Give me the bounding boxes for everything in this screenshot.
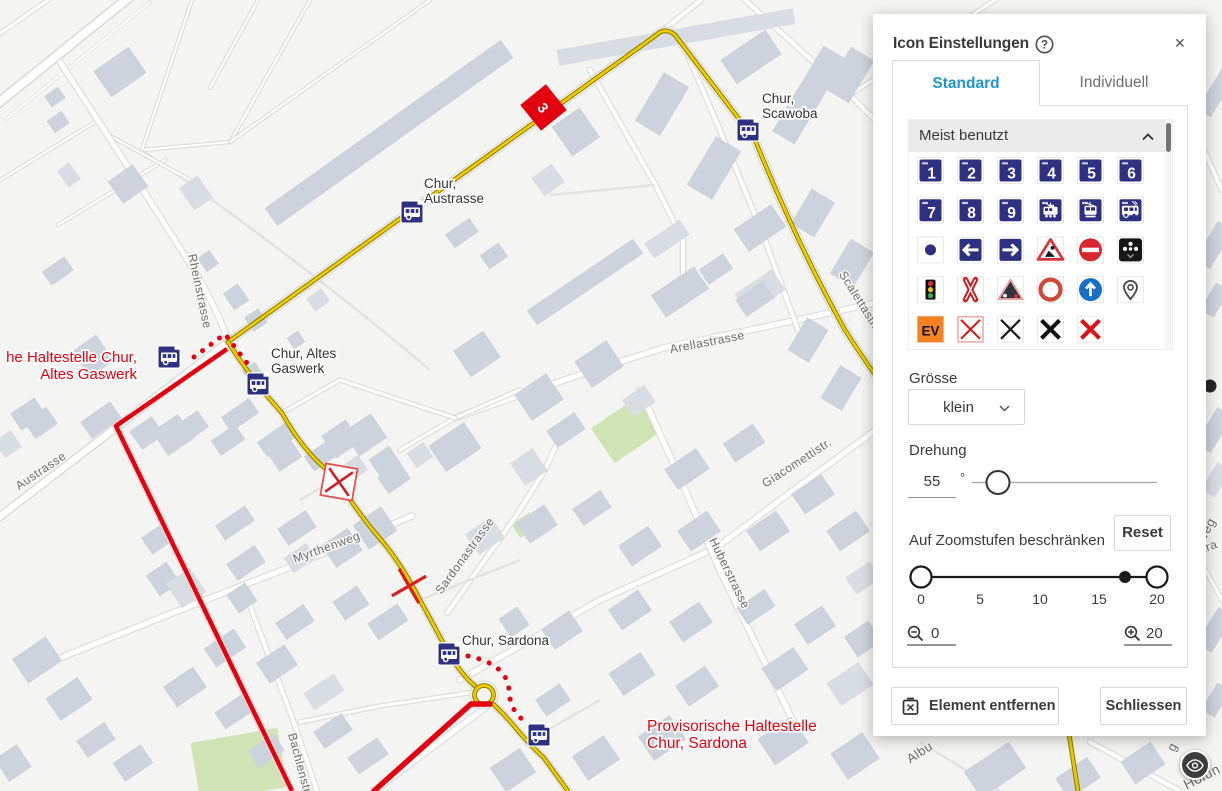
svg-text:he Haltestelle Chur,: he Haltestelle Chur, (6, 349, 137, 366)
svg-text:?: ? (1041, 40, 1048, 52)
svg-text:7: 7 (927, 205, 936, 222)
svg-text:4: 4 (1047, 166, 1056, 183)
svg-text:Altes Gaswerk: Altes Gaswerk (40, 366, 137, 383)
svg-text:Chur, Sardona: Chur, Sardona (462, 633, 550, 648)
svg-text:EV: EV (921, 323, 939, 338)
svg-text:6: 6 (1127, 166, 1136, 183)
svg-text:Chur, Sardona: Chur, Sardona (647, 735, 747, 752)
svg-text:Provisorische Haltestelle: Provisorische Haltestelle (647, 718, 817, 735)
svg-text:8: 8 (967, 205, 976, 222)
svg-text:Austrasse: Austrasse (424, 191, 484, 206)
svg-text:Scawoba: Scawoba (762, 106, 818, 121)
svg-text:1: 1 (927, 166, 936, 183)
svg-text:Gaswerk: Gaswerk (271, 361, 325, 376)
svg-text:3: 3 (1007, 166, 1016, 183)
svg-text:Chur,: Chur, (424, 176, 456, 191)
svg-text:9: 9 (1007, 205, 1016, 222)
svg-text:2: 2 (967, 166, 976, 183)
svg-text:Chur,: Chur, (762, 91, 794, 106)
svg-text:Chur, Altes: Chur, Altes (271, 346, 337, 361)
svg-text:5: 5 (1087, 166, 1096, 183)
